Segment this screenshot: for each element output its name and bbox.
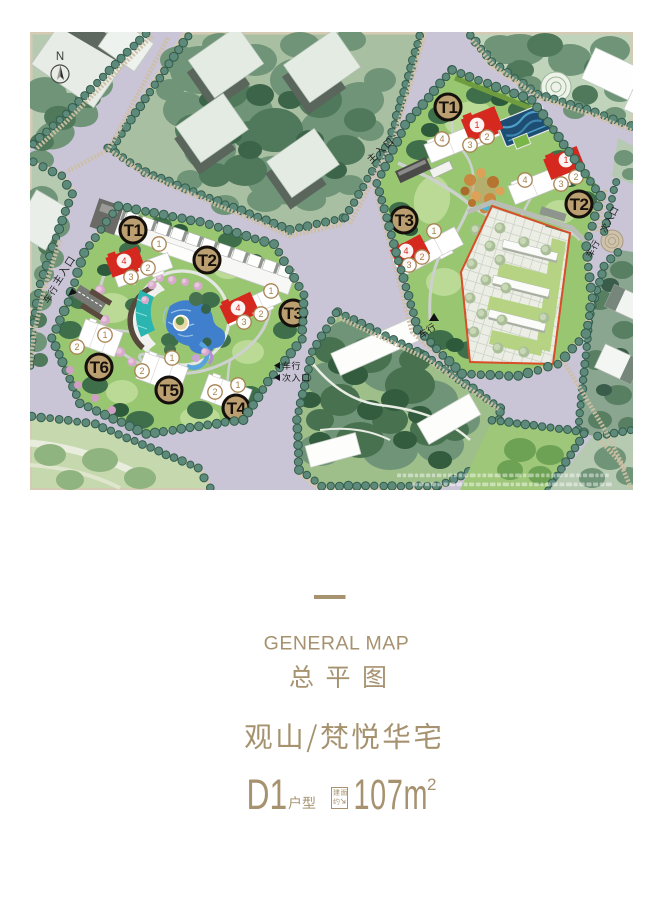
svg-text:4: 4	[121, 256, 126, 266]
svg-text:2: 2	[212, 387, 217, 397]
svg-text:T2: T2	[570, 195, 589, 214]
svg-text:T2: T2	[198, 251, 217, 270]
svg-text:1: 1	[431, 226, 436, 236]
svg-text:T3: T3	[395, 211, 414, 230]
svg-text:2: 2	[484, 132, 489, 142]
svg-text:2: 2	[139, 366, 144, 376]
svg-text:4: 4	[522, 175, 527, 185]
svg-text:3: 3	[128, 272, 133, 282]
svg-text:1: 1	[268, 286, 273, 296]
svg-text:4: 4	[439, 134, 444, 144]
svg-text:2: 2	[74, 342, 79, 352]
svg-text:2: 2	[258, 309, 263, 319]
svg-text:3: 3	[406, 260, 411, 270]
svg-text:1: 1	[156, 239, 161, 249]
svg-text:4: 4	[403, 246, 408, 256]
svg-text:T1: T1	[439, 98, 458, 117]
svg-text:D1: D1	[247, 771, 288, 819]
svg-text:1: 1	[235, 380, 240, 390]
svg-text:2: 2	[145, 263, 150, 273]
svg-text:T5: T5	[160, 381, 179, 400]
svg-text:T6: T6	[90, 358, 109, 377]
svg-text:2: 2	[427, 775, 436, 794]
svg-text:1: 1	[102, 330, 107, 340]
svg-text:3: 3	[558, 179, 563, 189]
svg-text:T1: T1	[124, 221, 143, 240]
svg-text:GENERAL MAP: GENERAL MAP	[264, 633, 410, 655]
svg-text:1: 1	[169, 353, 174, 363]
svg-text:2: 2	[573, 172, 578, 182]
svg-text:1: 1	[563, 155, 568, 165]
svg-text:107m: 107m	[354, 770, 429, 818]
svg-text:1: 1	[474, 120, 479, 130]
svg-text:3: 3	[241, 317, 246, 327]
svg-text:4: 4	[235, 303, 240, 313]
svg-text:2: 2	[419, 252, 424, 262]
svg-text:N: N	[56, 51, 64, 63]
svg-text:3: 3	[467, 140, 472, 150]
